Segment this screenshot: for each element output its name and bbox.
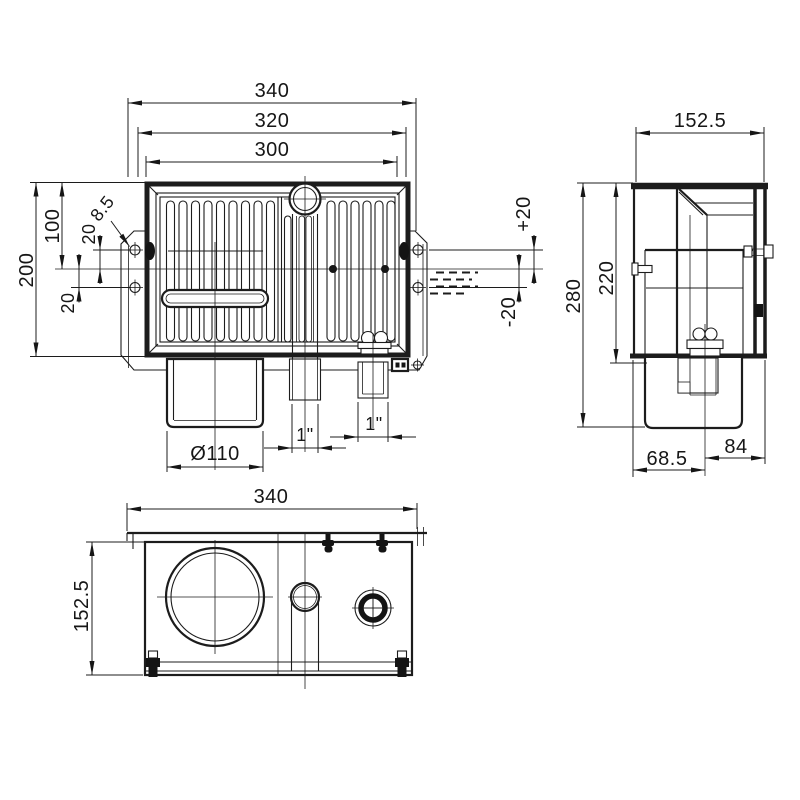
dim-bottom-overall-width: 340 — [254, 486, 289, 508]
water-level-symbol — [430, 273, 478, 294]
bottom-view — [86, 503, 427, 689]
dim-pipe-offset-left: 68.5 — [647, 448, 688, 470]
dim-front-overall-height: 200 — [16, 253, 38, 288]
dim-water-plus: +20 — [513, 196, 535, 231]
dim-port-right: 1" — [365, 414, 382, 434]
side-view — [577, 127, 773, 477]
dim-side-depth: 152.5 — [674, 110, 727, 132]
clamp-block — [754, 304, 763, 317]
funnel-wall — [679, 189, 707, 215]
dim-front-overall-width: 340 — [255, 80, 290, 102]
drawing-sheet: 340 320 300 200 100 20 20 8.5 +20 -20 Ø1… — [0, 0, 800, 800]
dim-side-overall-height: 280 — [563, 279, 585, 314]
frame-screw — [399, 242, 409, 260]
label-plate — [392, 359, 408, 371]
side-screw-left — [632, 263, 638, 275]
frame-screw — [145, 242, 155, 260]
dim-port-mid: 1" — [296, 425, 313, 445]
drawing-canvas: 340 320 300 200 100 20 20 8.5 +20 -20 Ø1… — [0, 0, 800, 800]
dim-water-minus: -20 — [498, 297, 520, 327]
dim-hole-diameter: 8.5 — [86, 192, 118, 225]
dim-side-body-height: 220 — [596, 261, 618, 296]
dim-pipe-offset-right: 84 — [724, 436, 747, 458]
dim-front-frame-width: 320 — [255, 110, 290, 132]
side-screw-right — [744, 246, 752, 257]
dim-front-opening-width: 300 — [255, 139, 290, 161]
dim-front-offset-lower: 20 — [58, 292, 78, 313]
dim-drain-diameter: Ø110 — [190, 443, 239, 465]
dim-front-upper-height: 100 — [42, 209, 64, 244]
dim-bottom-overall-depth: 152.5 — [71, 580, 93, 633]
dim-front-offset-upper: 20 — [79, 223, 99, 244]
